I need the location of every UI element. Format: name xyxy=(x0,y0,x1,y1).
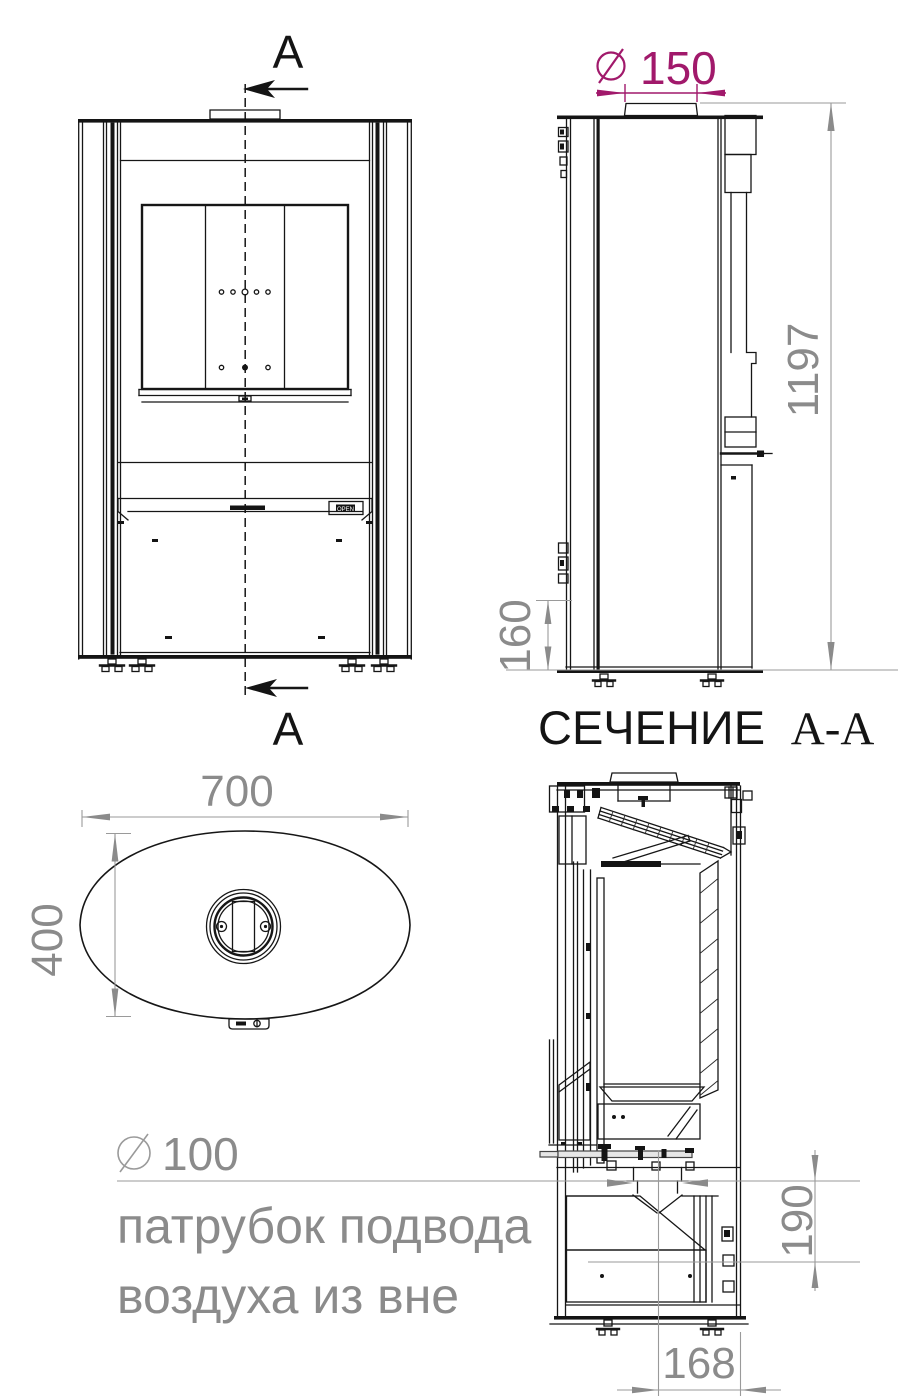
baffle-plate xyxy=(598,808,731,865)
section-arrow-top: A xyxy=(243,26,307,98)
front-view: OPEN xyxy=(78,26,412,755)
side-feet xyxy=(593,674,723,687)
stove-technical-drawing: OPEN xyxy=(0,0,915,1400)
base-height-value: 160 xyxy=(491,599,540,672)
section-title-main: СЕЧЕНИЕ xyxy=(538,701,765,754)
diameter-symbol xyxy=(598,49,625,83)
inlet-offset-value: 168 xyxy=(662,1339,735,1388)
diameter-symbol-gray xyxy=(118,1134,150,1172)
ash-pan xyxy=(598,1104,700,1139)
flue-collar-side xyxy=(625,104,698,116)
top-view xyxy=(80,831,410,1029)
air-inlet-flange xyxy=(627,1168,688,1214)
drawing-canvas: OPEN xyxy=(0,0,915,1400)
air-note-line2: воздуха из вне xyxy=(117,1268,459,1324)
control-rod xyxy=(540,1144,694,1161)
open-badge-label: OPEN xyxy=(337,507,354,513)
open-badge: OPEN xyxy=(329,502,363,515)
dim-inlet-height: 190 xyxy=(588,1150,860,1291)
dim-inlet-offset: 168 xyxy=(617,1150,781,1396)
top-width-value: 700 xyxy=(200,767,273,816)
drawer-handle xyxy=(230,506,265,511)
dim-flue-diameter: 150 xyxy=(596,42,726,102)
overall-height-value: 1197 xyxy=(779,323,828,418)
air-note-line1: патрубок подвода xyxy=(117,1198,532,1254)
section-label-bottom: A xyxy=(273,703,304,755)
top-rear-tab xyxy=(229,1019,269,1029)
dim-base-height: 160 xyxy=(491,599,572,672)
top-body-outline xyxy=(80,831,410,1019)
side-view xyxy=(557,104,772,687)
dim-air-inlet: 100 патрубок подвода воздуха из вне xyxy=(117,1128,860,1324)
front-feet xyxy=(100,659,396,672)
dim-top-width: 700 xyxy=(82,767,408,827)
section-feet xyxy=(597,1320,723,1335)
section-view xyxy=(540,773,752,1335)
air-inlet-diameter-value: 100 xyxy=(162,1128,239,1180)
firebox-lining xyxy=(700,861,718,1098)
dim-overall-height: 1197 xyxy=(506,103,898,670)
section-label-top: A xyxy=(273,26,304,78)
dim-top-depth: 400 xyxy=(23,834,131,1017)
flue-diameter-value: 150 xyxy=(640,42,717,94)
top-depth-value: 400 xyxy=(23,903,72,976)
section-title: СЕЧЕНИЕ А-А xyxy=(538,701,874,755)
lower-panel xyxy=(567,1250,707,1302)
section-title-ref: А-А xyxy=(791,703,875,755)
top-flue-collar xyxy=(207,890,281,964)
inlet-height-value: 190 xyxy=(773,1184,822,1257)
section-arrow-bottom: A xyxy=(245,679,307,755)
